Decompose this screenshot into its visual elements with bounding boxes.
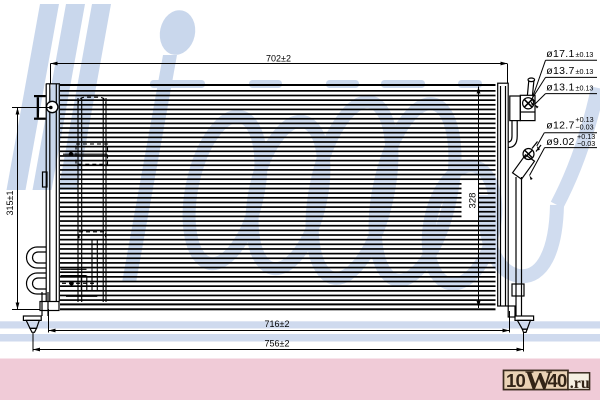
svg-text:702±2: 702±2 — [266, 53, 291, 63]
svg-text:315±1: 315±1 — [5, 191, 15, 216]
svg-text:−0.03: −0.03 — [575, 122, 593, 131]
svg-text:716±2: 716±2 — [265, 319, 290, 329]
svg-text:±0.13: ±0.13 — [576, 67, 594, 76]
svg-text:40: 40 — [548, 370, 567, 391]
svg-text:ø13.7: ø13.7 — [546, 65, 574, 77]
svg-text:ø12.7: ø12.7 — [546, 120, 574, 132]
svg-text:−0.03: −0.03 — [577, 139, 595, 148]
svg-text:ø9.02: ø9.02 — [546, 136, 574, 148]
svg-text:756±2: 756±2 — [265, 338, 290, 348]
svg-text:±0.13: ±0.13 — [576, 50, 594, 59]
svg-text:.ru: .ru — [570, 375, 590, 392]
svg-text:328: 328 — [468, 193, 479, 209]
svg-text:ø17.1: ø17.1 — [546, 48, 574, 60]
svg-text:ø13.1: ø13.1 — [546, 81, 574, 93]
svg-text:±0.13: ±0.13 — [576, 83, 594, 92]
svg-text:10: 10 — [506, 370, 525, 391]
